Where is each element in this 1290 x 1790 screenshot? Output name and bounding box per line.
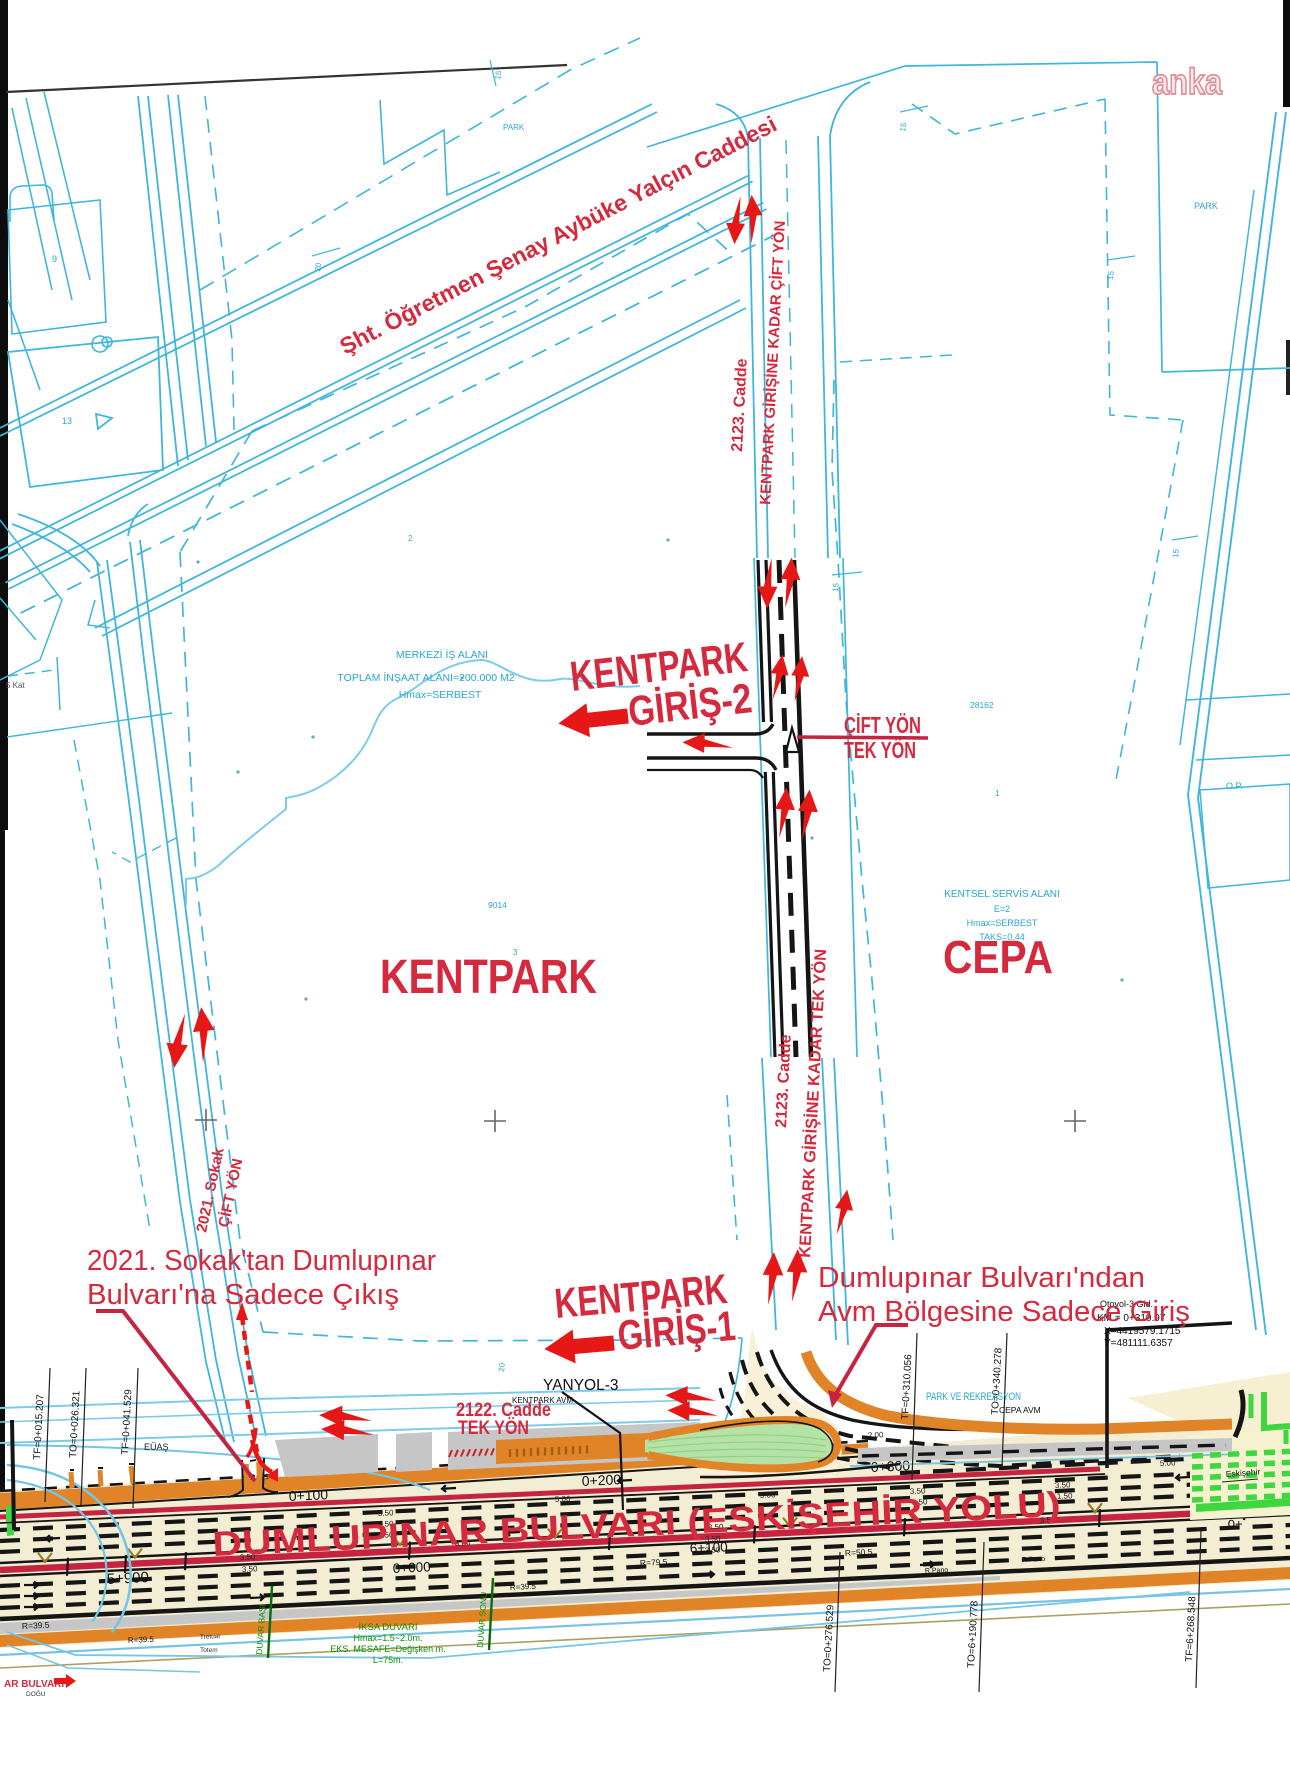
svg-text:O.P.: O.P. <box>1226 781 1243 791</box>
svg-text:TEK YÖN: TEK YÖN <box>844 737 916 763</box>
svg-text:5.00: 5.00 <box>555 1494 572 1504</box>
svg-text:PARK VE REKREASYON: PARK VE REKREASYON <box>926 1391 1021 1403</box>
svg-text:20: 20 <box>497 1362 507 1372</box>
svg-text:Bulvarı'na Sadece Çıkış: Bulvarı'na Sadece Çıkış <box>87 1279 399 1311</box>
svg-text:0+000: 0+000 <box>392 1559 431 1576</box>
svg-text:15: 15 <box>831 582 841 592</box>
svg-text:R.Pano: R.Pano <box>925 1567 949 1575</box>
svg-text:ÇİFT YÖN: ÇİFT YÖN <box>844 712 921 738</box>
svg-text:PARK: PARK <box>1194 201 1218 211</box>
svg-text:5 Kat: 5 Kat <box>6 681 25 690</box>
svg-text:15: 15 <box>1171 548 1181 558</box>
svg-text:KENTSEL SERVİS ALANI: KENTSEL SERVİS ALANI <box>944 887 1060 900</box>
svg-text:28162: 28162 <box>970 700 994 710</box>
svg-text:Hmax=SERBEST: Hmax=SERBEST <box>967 918 1038 928</box>
svg-text:R=79.5: R=79.5 <box>640 1557 668 1568</box>
svg-text:Avm Bölgesine Sadece Giriş: Avm Bölgesine Sadece Giriş <box>818 1296 1190 1328</box>
svg-text:15: 15 <box>1106 270 1116 280</box>
svg-text:TEK YÖN: TEK YÖN <box>458 1418 529 1439</box>
svg-text:13: 13 <box>62 416 72 426</box>
svg-text:0+: 0+ <box>1227 1516 1243 1532</box>
svg-text:5+900: 5+900 <box>106 1569 149 1588</box>
svg-text:Tretuar: Tretuar <box>200 1633 222 1641</box>
svg-text:2: 2 <box>408 534 413 543</box>
svg-text:MERKEZİ İŞ ALANI: MERKEZİ İŞ ALANI <box>396 648 488 661</box>
svg-text:9: 9 <box>52 254 57 264</box>
svg-text:9014: 9014 <box>488 900 507 910</box>
svg-text:R.Pano: R.Pano <box>1022 1556 1046 1564</box>
svg-text:DOĞU: DOĞU <box>26 1689 46 1698</box>
svg-text:2021. Sokak'tan Dumlupınar: 2021. Sokak'tan Dumlupınar <box>87 1245 436 1277</box>
svg-text:KENTPARK: KENTPARK <box>380 951 597 1004</box>
svg-text:3.50: 3.50 <box>242 1564 259 1574</box>
svg-text:İKSA DUVARI: İKSA DUVARI <box>359 1622 418 1633</box>
svg-text:E=2: E=2 <box>994 904 1010 914</box>
svg-text:5.00: 5.00 <box>1160 1458 1177 1468</box>
svg-text:CEPA AVM: CEPA AVM <box>999 1405 1041 1415</box>
svg-text:anka: anka <box>1152 61 1223 102</box>
svg-text:EKS. MESAFE=Değişken m.: EKS. MESAFE=Değişken m. <box>330 1644 445 1654</box>
svg-text:TOPLAM İNŞAAT ALANI=200.000 M2: TOPLAM İNŞAAT ALANI=200.000 M2 <box>337 671 514 684</box>
svg-text:R=39.5: R=39.5 <box>510 1582 537 1592</box>
svg-text:R=39.5: R=39.5 <box>128 1635 155 1645</box>
svg-text:0+200: 0+200 <box>581 1471 621 1489</box>
svg-text:Y=481111.6357: Y=481111.6357 <box>1104 1338 1173 1349</box>
svg-text:1: 1 <box>995 789 1000 798</box>
svg-text:PARK: PARK <box>503 123 525 132</box>
svg-text:R=50.5: R=50.5 <box>845 1547 873 1558</box>
svg-text:R=39.5: R=39.5 <box>22 1620 50 1631</box>
svg-text:0+100: 0+100 <box>288 1486 328 1504</box>
svg-text:Totem: Totem <box>200 1647 218 1654</box>
svg-text:EÜAŞ: EÜAŞ <box>144 1442 169 1452</box>
svg-text:L=75m.: L=75m. <box>373 1655 403 1665</box>
svg-text:Hmax=1.5~2.0m.: Hmax=1.5~2.0m. <box>353 1633 422 1643</box>
svg-text:6+100: 6+100 <box>689 1539 728 1556</box>
svg-text:CEPA: CEPA <box>943 931 1053 983</box>
svg-text:Hmax=SERBEST: Hmax=SERBEST <box>399 689 482 701</box>
svg-text:Dumlupınar Bulvarı'ndan: Dumlupınar Bulvarı'ndan <box>818 1262 1145 1294</box>
svg-text:YANYOL-3: YANYOL-3 <box>543 1377 619 1394</box>
